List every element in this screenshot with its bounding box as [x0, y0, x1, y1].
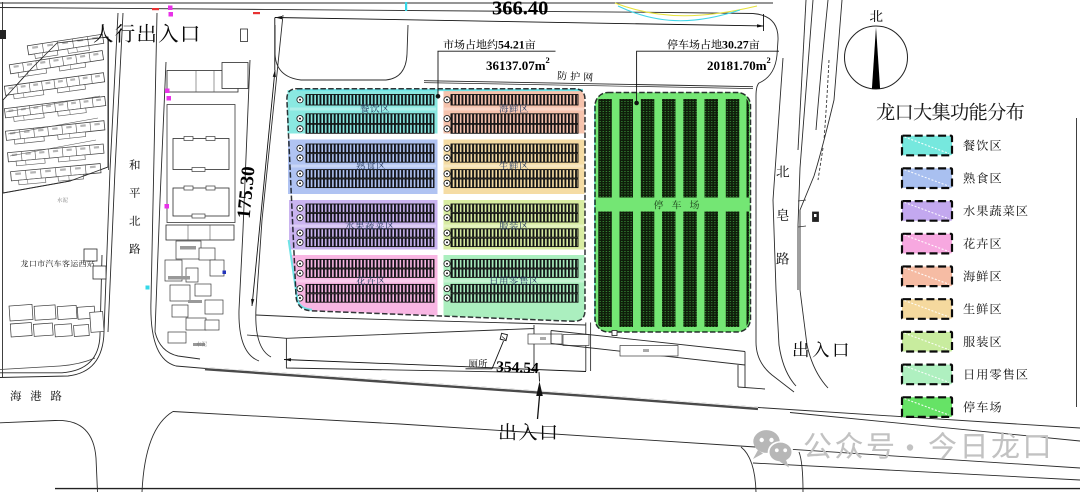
- svg-text:354.54: 354.54: [496, 359, 540, 378]
- svg-text:366.40: 366.40: [492, 0, 548, 20]
- svg-text:20181.70m: 20181.70m: [707, 58, 767, 73]
- svg-text:2: 2: [767, 55, 771, 65]
- svg-text:54.21: 54.21: [498, 38, 525, 52]
- svg-text:36137.07m: 36137.07m: [486, 58, 546, 73]
- svg-text:2: 2: [546, 55, 550, 65]
- svg-text:30.27: 30.27: [722, 38, 749, 52]
